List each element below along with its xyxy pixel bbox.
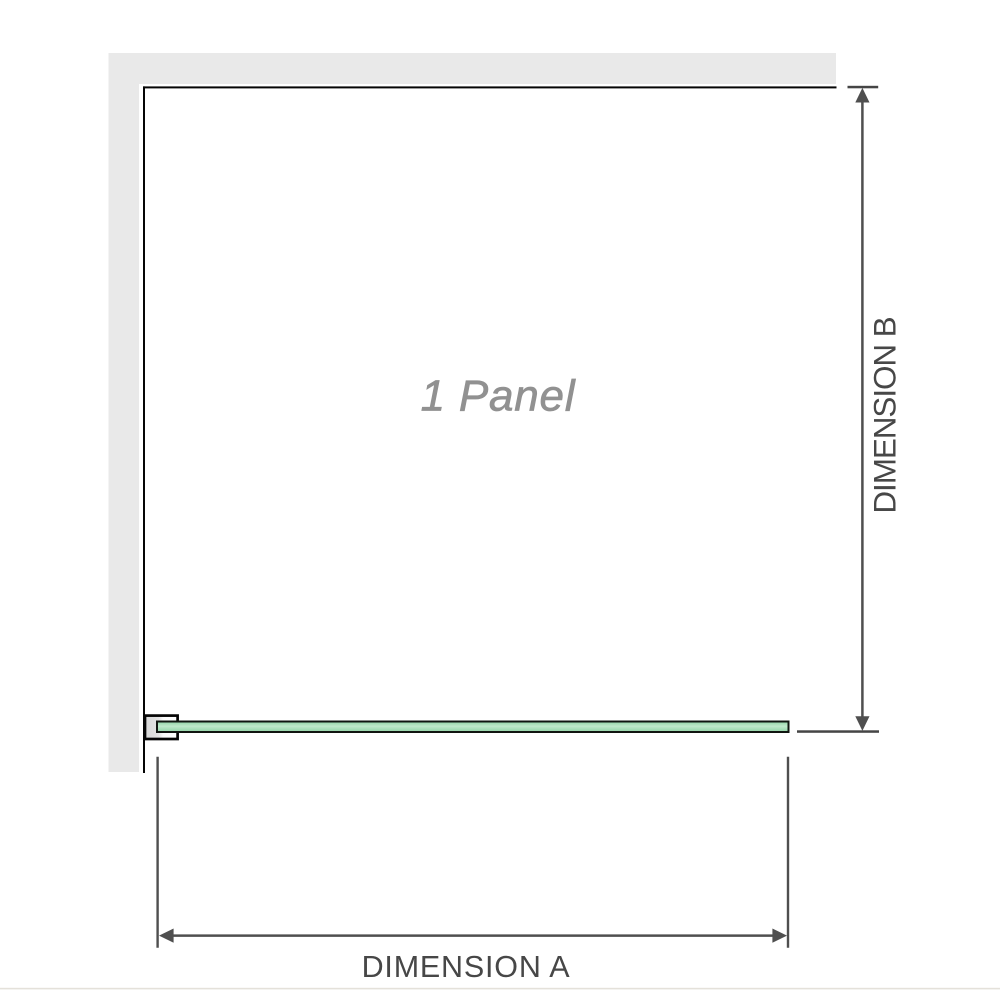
svg-text:DIMENSION A: DIMENSION A — [362, 950, 571, 984]
svg-text:DIMENSION B: DIMENSION B — [867, 317, 903, 513]
svg-text:1 Panel: 1 Panel — [421, 372, 576, 421]
